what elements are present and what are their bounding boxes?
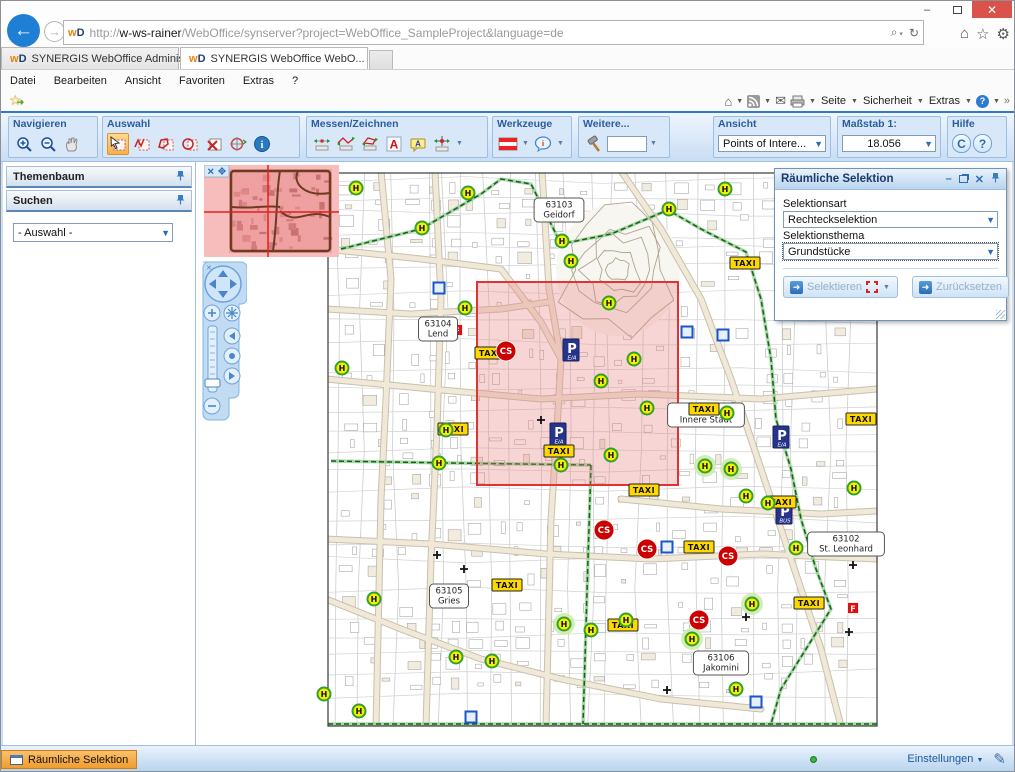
- bubble-dropdown-icon[interactable]: ▼: [556, 140, 565, 147]
- selektieren-button[interactable]: ➜ Selektieren ▼: [783, 276, 898, 298]
- group-masstab: Maßstab 1: 18.056 ▼: [837, 116, 941, 158]
- map-marker-bus-stop[interactable]: H: [663, 203, 676, 216]
- svg-text:H: H: [453, 653, 460, 662]
- zoom-slider-handle[interactable]: [205, 379, 220, 387]
- overview-map[interactable]: ✕: [204, 165, 339, 257]
- search-theme-select[interactable]: - Auswahl - ▼: [13, 223, 173, 242]
- group-label: Navigieren: [13, 118, 93, 131]
- map-marker-bus-stop[interactable]: H: [486, 655, 499, 668]
- group-label: Hilfe: [952, 118, 1002, 131]
- svg-text:63103: 63103: [545, 201, 572, 211]
- svg-text:Geidorf: Geidorf: [543, 211, 575, 221]
- svg-text:CS: CS: [641, 545, 654, 555]
- sidebar-item-themenbaum[interactable]: Themenbaum: [6, 166, 192, 188]
- address-bar[interactable]: wD http://w-ws-rainer/WebOffice/synserve…: [63, 20, 924, 45]
- menu-hilfe[interactable]: ?: [283, 75, 307, 87]
- browser-titlebar: – ✕ ← → wD http://w-ws-rainer/WebOffice/…: [1, 1, 1014, 47]
- map-marker-bus-stop[interactable]: H: [848, 482, 861, 495]
- flag-dropdown-icon[interactable]: ▼: [521, 140, 530, 147]
- command-bar: ⌂▼ ▼ ✉ ▼ Seite▼ Sicherheit▼ Extras▼ ?▼ »: [724, 91, 1010, 111]
- tools-hammer-icon[interactable]: [583, 133, 605, 155]
- map-marker-parking[interactable]: PE/A: [550, 423, 566, 446]
- chevron-down-icon: ▼: [921, 139, 933, 149]
- map-marker-cs[interactable]: CS: [594, 520, 614, 540]
- dialog-close-icon[interactable]: ✕: [975, 173, 984, 186]
- map-marker-bus-stop[interactable]: H: [699, 460, 712, 473]
- help-button[interactable]: ?: [973, 134, 992, 153]
- svg-text:H: H: [561, 620, 568, 629]
- map-marker-bus-stop[interactable]: H: [565, 255, 578, 268]
- info-bubble-tool[interactable]: i: [532, 133, 554, 155]
- favorites-star-icon[interactable]: ☆: [976, 25, 989, 43]
- tab-favicon: wD: [189, 53, 206, 65]
- mail-icon[interactable]: ✉: [775, 93, 786, 109]
- map-marker-bus-stop[interactable]: H: [740, 490, 753, 503]
- clear-selection-tool[interactable]: [203, 133, 225, 155]
- svg-text:A: A: [415, 139, 421, 148]
- svg-text:H: H: [559, 237, 566, 246]
- favorites-bar: ☆➜ ⌂▼ ▼ ✉ ▼ Seite▼ Sicherheit▼ Extras▼ ?…: [1, 91, 1014, 111]
- edit-pencil-icon[interactable]: ✎: [993, 750, 1006, 768]
- svg-text:H: H: [598, 377, 605, 386]
- menu-bearbeiten[interactable]: Bearbeiten: [45, 75, 116, 87]
- selektionsart-value: Rechteckselektion: [788, 214, 877, 226]
- svg-text:H: H: [443, 426, 450, 435]
- map-marker-bus-stop[interactable]: H: [628, 353, 641, 366]
- search-icon[interactable]: ⌕ ▾: [891, 25, 903, 40]
- menu-bar: Datei Bearbeiten Ansicht Favoriten Extra…: [1, 70, 1014, 91]
- map-marker-cs[interactable]: CS: [637, 539, 657, 559]
- map-marker-info[interactable]: [751, 697, 762, 708]
- window-close-button[interactable]: ✕: [972, 1, 1012, 18]
- map-marker-bus-stop[interactable]: H: [416, 222, 429, 235]
- tab-title: SYNERGIS WebOffice WebO...: [211, 53, 365, 65]
- svg-text:TAXI: TAXI: [688, 543, 710, 552]
- svg-text:H: H: [793, 544, 800, 553]
- svg-text:i: i: [261, 140, 264, 151]
- url-text[interactable]: http://w-ws-rainer/WebOffice/synserver?p…: [90, 26, 885, 40]
- map-marker-bus-stop[interactable]: H: [719, 183, 732, 196]
- coordinate-tool[interactable]: [431, 133, 453, 155]
- home-page-icon[interactable]: ⌂: [724, 94, 732, 109]
- map-marker-cs[interactable]: CS: [689, 610, 709, 630]
- map-marker-bus-stop[interactable]: H: [353, 705, 366, 718]
- selektionsart-label: Selektionsart: [783, 198, 998, 210]
- svg-text:63106: 63106: [707, 654, 734, 664]
- svg-text:H: H: [568, 257, 575, 266]
- statusbar-tab-label: Räumliche Selektion: [28, 754, 128, 766]
- map-marker-bus-stop[interactable]: H: [730, 683, 743, 696]
- arrow-right-icon: ➜: [790, 281, 803, 294]
- rss-icon[interactable]: [747, 95, 760, 108]
- map-marker-taxi[interactable]: TAXI: [629, 484, 659, 496]
- draw-text-tool[interactable]: A: [383, 133, 405, 155]
- group-label: Weitere...: [583, 118, 665, 131]
- dialog-pin-icon[interactable]: [991, 172, 1000, 186]
- zoom-in-tool[interactable]: [13, 133, 35, 155]
- measure-line-tool[interactable]: [335, 133, 357, 155]
- map-marker-info[interactable]: [466, 712, 477, 723]
- svg-text:H: H: [749, 600, 756, 609]
- app-area: Themenbaum Suchen - Auswahl - ▼ PE/APE/A…: [1, 162, 1014, 747]
- svg-text:St. Leonhard: St. Leonhard: [819, 545, 873, 555]
- pin-icon[interactable]: [176, 194, 185, 208]
- selektionsthema-select[interactable]: Grundstücke ▼: [783, 243, 998, 260]
- svg-text:H: H: [728, 465, 735, 474]
- measure-point-tool[interactable]: [311, 133, 333, 155]
- zuruecksetzen-button[interactable]: ➜ Zurücksetzen: [912, 276, 1009, 298]
- tab-favicon: wD: [10, 53, 27, 65]
- svg-text:TAXI: TAXI: [693, 405, 715, 414]
- svg-text:H: H: [851, 484, 858, 493]
- group-messen: Messen/Zeichnen A A ▼: [306, 116, 488, 158]
- svg-text:H: H: [689, 635, 696, 644]
- add-favorite-icon[interactable]: ☆➜: [9, 92, 24, 109]
- svg-text:63105: 63105: [435, 587, 462, 597]
- svg-text:Gries: Gries: [438, 597, 461, 607]
- maximize-icon: [953, 6, 962, 14]
- svg-text:H: H: [606, 299, 613, 308]
- map-marker-bus-stop[interactable]: H: [350, 182, 363, 195]
- group-label: Ansicht: [718, 118, 826, 131]
- ansicht-select-value: Points of Intere...: [723, 138, 806, 150]
- menu-favoriten[interactable]: Favoriten: [170, 75, 234, 87]
- district-label: 63102St. Leonhard: [808, 532, 885, 556]
- site-favicon: wD: [68, 27, 85, 39]
- zoom-out-tool[interactable]: [37, 133, 59, 155]
- map-marker-bus-stop[interactable]: H: [459, 302, 472, 315]
- window-maximize-button[interactable]: [942, 1, 972, 18]
- group-werkzeuge: Werkzeuge ▼ i ▼: [492, 116, 572, 158]
- svg-text:TAXI: TAXI: [798, 599, 820, 608]
- svg-text:63102: 63102: [832, 535, 859, 545]
- district-label: 63104Lend: [419, 317, 458, 341]
- map-marker-taxi[interactable]: TAXI: [544, 445, 574, 457]
- suchen-label: Suchen: [13, 195, 53, 207]
- svg-text:E/A: E/A: [777, 443, 786, 449]
- map-marker-bus-stop[interactable]: H: [620, 614, 633, 627]
- window-minimize-button[interactable]: –: [912, 1, 942, 18]
- svg-text:H: H: [631, 355, 638, 364]
- svg-text:TAXI: TAXI: [496, 581, 518, 590]
- map-marker-bus-stop[interactable]: H: [725, 463, 738, 476]
- dialog-resize-grip[interactable]: [996, 310, 1005, 319]
- chevron-down-icon: ▼: [158, 228, 170, 238]
- status-indicator-icon: [810, 756, 817, 763]
- sidebar: Themenbaum Suchen - Auswahl - ▼: [3, 162, 196, 747]
- select-polygon-tool[interactable]: [155, 133, 177, 155]
- flag-tool[interactable]: [497, 133, 519, 155]
- district-label: 63105Gries: [430, 584, 469, 608]
- dialog-minimize-icon[interactable]: –: [946, 173, 952, 185]
- print-icon[interactable]: [790, 95, 805, 108]
- dialog-titlebar[interactable]: Räumliche Selektion – ✕: [775, 169, 1006, 190]
- map-marker-parking[interactable]: PE/A: [563, 339, 579, 362]
- map-marker-info[interactable]: [434, 283, 445, 294]
- svg-text:TAXI: TAXI: [850, 415, 872, 424]
- dialog-title: Räumliche Selektion: [781, 173, 893, 185]
- zuruecksetzen-label: Zurücksetzen: [936, 281, 1002, 293]
- measure-area-tool[interactable]: [359, 133, 381, 155]
- map-marker-bus-stop[interactable]: H: [318, 688, 331, 701]
- svg-text:Jakomini: Jakomini: [702, 664, 739, 674]
- map-navigation-control[interactable]: ✕: [199, 260, 247, 426]
- tab-strip: wD SYNERGIS WebOffice Administ... wD SYN…: [1, 47, 1014, 70]
- map-marker-taxi[interactable]: TAXI: [846, 413, 876, 425]
- svg-text:H: H: [623, 616, 630, 625]
- svg-text:H: H: [666, 205, 673, 214]
- svg-text:TAXI: TAXI: [633, 486, 655, 495]
- browser-window: – ✕ ← → wD http://w-ws-rainer/WebOffice/…: [0, 0, 1015, 772]
- selektionsthema-value: Grundstücke: [788, 246, 850, 258]
- svg-text:CS: CS: [693, 616, 706, 626]
- refresh-icon[interactable]: ↻: [909, 26, 919, 40]
- group-hilfe: Hilfe C ?: [947, 116, 1007, 158]
- svg-text:H: H: [353, 184, 360, 193]
- map-marker-bus-stop[interactable]: H: [641, 402, 654, 415]
- map-marker-bus-stop[interactable]: H: [595, 375, 608, 388]
- draw-label-tool[interactable]: A: [407, 133, 429, 155]
- search-theme-value: - Auswahl -: [18, 227, 72, 239]
- svg-text:H: H: [419, 224, 426, 233]
- svg-text:TAXI: TAXI: [734, 259, 756, 268]
- svg-text:H: H: [339, 364, 346, 373]
- tab-title: SYNERGIS WebOffice Administ...: [32, 53, 197, 65]
- svg-text:63104: 63104: [424, 320, 451, 330]
- svg-text:H: H: [722, 185, 729, 194]
- svg-text:CS: CS: [500, 347, 513, 357]
- svg-text:H: H: [321, 690, 328, 699]
- pan-tool[interactable]: [61, 133, 83, 155]
- sidebar-item-suchen[interactable]: Suchen: [6, 190, 192, 212]
- map-marker-bus-stop[interactable]: H: [368, 593, 381, 606]
- weitere-dropdown-icon[interactable]: ▼: [649, 140, 658, 147]
- selektionsart-select[interactable]: Rechteckselektion ▼: [783, 211, 998, 228]
- raeumliche-selektion-dialog: Räumliche Selektion – ✕ Selektionsart Re…: [774, 168, 1007, 321]
- map-marker-bus-stop[interactable]: H: [555, 459, 568, 472]
- extras-menu[interactable]: Extras: [928, 95, 961, 107]
- messen-dropdown-icon[interactable]: ▼: [455, 140, 464, 147]
- seite-menu[interactable]: Seite: [820, 95, 847, 107]
- svg-text:H: H: [356, 707, 363, 716]
- group-ansicht: Ansicht Points of Intere... ▼: [713, 116, 831, 158]
- dialog-restore-icon[interactable]: [959, 175, 968, 183]
- svg-text:A: A: [390, 137, 399, 151]
- map-marker-taxi[interactable]: TAXI: [689, 403, 719, 415]
- svg-text:BUS: BUS: [779, 519, 791, 525]
- map-marker-cs[interactable]: CS: [718, 546, 738, 566]
- select-line-tool[interactable]: [131, 133, 153, 155]
- chevron-down-icon: ▼: [983, 247, 995, 257]
- selektieren-label: Selektieren: [807, 281, 862, 293]
- home-icon[interactable]: ⌂: [960, 25, 969, 43]
- map-marker-bus-stop[interactable]: H: [558, 618, 571, 631]
- status-bar: Räumliche Selektion Einstellungen ▼ ✎: [1, 745, 1014, 771]
- arrow-right-icon: ➜: [919, 281, 932, 294]
- weitere-input[interactable]: [607, 136, 647, 152]
- svg-text:H: H: [436, 459, 443, 468]
- svg-text:H: H: [765, 499, 772, 508]
- svg-text:F: F: [850, 605, 855, 614]
- svg-text:H: H: [489, 657, 496, 666]
- map-marker-bus-stop[interactable]: H: [440, 424, 453, 437]
- svg-text:H: H: [608, 451, 615, 460]
- help-icon[interactable]: ?: [976, 95, 989, 108]
- map-marker-taxi[interactable]: TAXI: [492, 579, 522, 591]
- menu-ansicht[interactable]: Ansicht: [116, 75, 170, 87]
- map-marker-parking[interactable]: PE/A: [773, 426, 789, 449]
- selektionsthema-label: Selektionsthema: [783, 230, 998, 242]
- themenbaum-label: Themenbaum: [13, 171, 85, 183]
- group-navigieren: Navigieren: [8, 116, 98, 158]
- district-label: 63106Jakomini: [693, 651, 748, 675]
- tab-weboffice-client[interactable]: wD SYNERGIS WebOffice WebO... ✕: [180, 47, 368, 69]
- svg-text:H: H: [465, 189, 472, 198]
- masstab-select-value: 18.056: [867, 138, 901, 150]
- settings-gear-icon[interactable]: ⚙: [997, 25, 1010, 43]
- menu-extras[interactable]: Extras: [234, 75, 283, 87]
- masstab-select[interactable]: 18.056 ▼: [842, 135, 936, 152]
- svg-text:H: H: [743, 492, 750, 501]
- map-marker-bus-stop[interactable]: H: [603, 297, 616, 310]
- group-label: Messen/Zeichnen: [311, 118, 483, 131]
- svg-text:H: H: [462, 304, 469, 313]
- einstellungen-menu[interactable]: Einstellungen ▼: [907, 753, 983, 765]
- group-auswahl: Auswahl i: [102, 116, 300, 158]
- overview-controls[interactable]: ✕: [204, 165, 229, 177]
- svg-text:H: H: [724, 409, 731, 418]
- svg-text:Lend: Lend: [428, 330, 449, 340]
- ansicht-select[interactable]: Points of Intere... ▼: [718, 135, 826, 152]
- group-label: Werkzeuge: [497, 118, 567, 131]
- map-marker-bus-stop[interactable]: H: [556, 235, 569, 248]
- map-marker-bus-stop[interactable]: H: [433, 457, 446, 470]
- svg-text:H: H: [371, 595, 378, 604]
- district-label: 63103Geidorf: [534, 198, 584, 222]
- tab-weboffice-administrator[interactable]: wD SYNERGIS WebOffice Administ...: [1, 47, 179, 69]
- chevron-down-icon: ▼: [983, 215, 995, 225]
- new-tab-stub[interactable]: [369, 50, 393, 69]
- identify-info-tool[interactable]: i: [251, 133, 273, 155]
- select-circle-tool[interactable]: [179, 133, 201, 155]
- context-help-button[interactable]: C: [952, 134, 971, 153]
- map-marker-info[interactable]: [662, 542, 673, 553]
- map-marker-bus-stop[interactable]: H: [605, 449, 618, 462]
- buffer-selection-tool[interactable]: [227, 133, 249, 155]
- map-marker-bus-stop[interactable]: H: [450, 651, 463, 664]
- svg-text:TAXI: TAXI: [548, 447, 570, 456]
- svg-text:H: H: [644, 404, 651, 413]
- svg-text:H: H: [702, 462, 709, 471]
- map-marker-cs[interactable]: CS: [496, 341, 516, 361]
- map-marker-bus-stop[interactable]: H: [746, 598, 759, 611]
- overview-close-icon[interactable]: ✕: [207, 167, 215, 177]
- map-marker-taxi[interactable]: TAXI: [794, 597, 824, 609]
- svg-text:H: H: [588, 626, 595, 635]
- map-marker-taxi[interactable]: TAXI: [684, 541, 714, 553]
- chevron-down-icon: ▼: [811, 139, 823, 149]
- statusbar-tab-raeumliche-selektion[interactable]: Räumliche Selektion: [1, 750, 137, 769]
- map-marker-info[interactable]: [718, 330, 729, 341]
- group-label: Maßstab 1:: [842, 118, 936, 131]
- select-rectangle-tool[interactable]: [107, 133, 129, 155]
- menu-datei[interactable]: Datei: [1, 75, 45, 87]
- map-marker-bus-stop[interactable]: H: [585, 624, 598, 637]
- pin-icon[interactable]: [176, 170, 185, 184]
- weboffice-toolbar: Navigieren Auswahl i Messen/Zeichnen: [1, 113, 1014, 162]
- overflow-chevron-icon[interactable]: »: [1004, 95, 1010, 107]
- map-marker-bus-stop[interactable]: H: [790, 542, 803, 555]
- window-icon: [10, 755, 23, 765]
- svg-text:H: H: [558, 461, 565, 470]
- map-marker-taxi[interactable]: TAXI: [730, 257, 760, 269]
- svg-text:H: H: [733, 685, 740, 694]
- map-marker-bus-stop[interactable]: H: [721, 407, 734, 420]
- svg-text:CS: CS: [722, 552, 735, 562]
- map-marker-bus-stop[interactable]: H: [462, 187, 475, 200]
- browser-forward-button[interactable]: →: [44, 21, 65, 42]
- selektieren-dropdown-icon[interactable]: ▼: [882, 284, 891, 291]
- group-weitere: Weitere... ▼: [578, 116, 670, 158]
- svg-text:CS: CS: [598, 526, 611, 536]
- map-marker-info[interactable]: [682, 327, 693, 338]
- map-marker-bus-stop[interactable]: H: [762, 497, 775, 510]
- group-label: Auswahl: [107, 118, 295, 131]
- browser-back-button[interactable]: ←: [7, 14, 40, 47]
- svg-text:E/A: E/A: [567, 356, 576, 362]
- map-viewport[interactable]: PE/APE/APE/APBUSFF63103Geidorf63104Lend6…: [197, 162, 1012, 747]
- selection-rectangle[interactable]: [477, 282, 678, 485]
- map-marker-bus-stop[interactable]: H: [686, 633, 699, 646]
- sicherheit-menu[interactable]: Sicherheit: [862, 95, 913, 107]
- map-marker-bus-stop[interactable]: H: [336, 362, 349, 375]
- map-marker-f[interactable]: F: [848, 603, 859, 614]
- selection-rect-icon: [866, 281, 878, 293]
